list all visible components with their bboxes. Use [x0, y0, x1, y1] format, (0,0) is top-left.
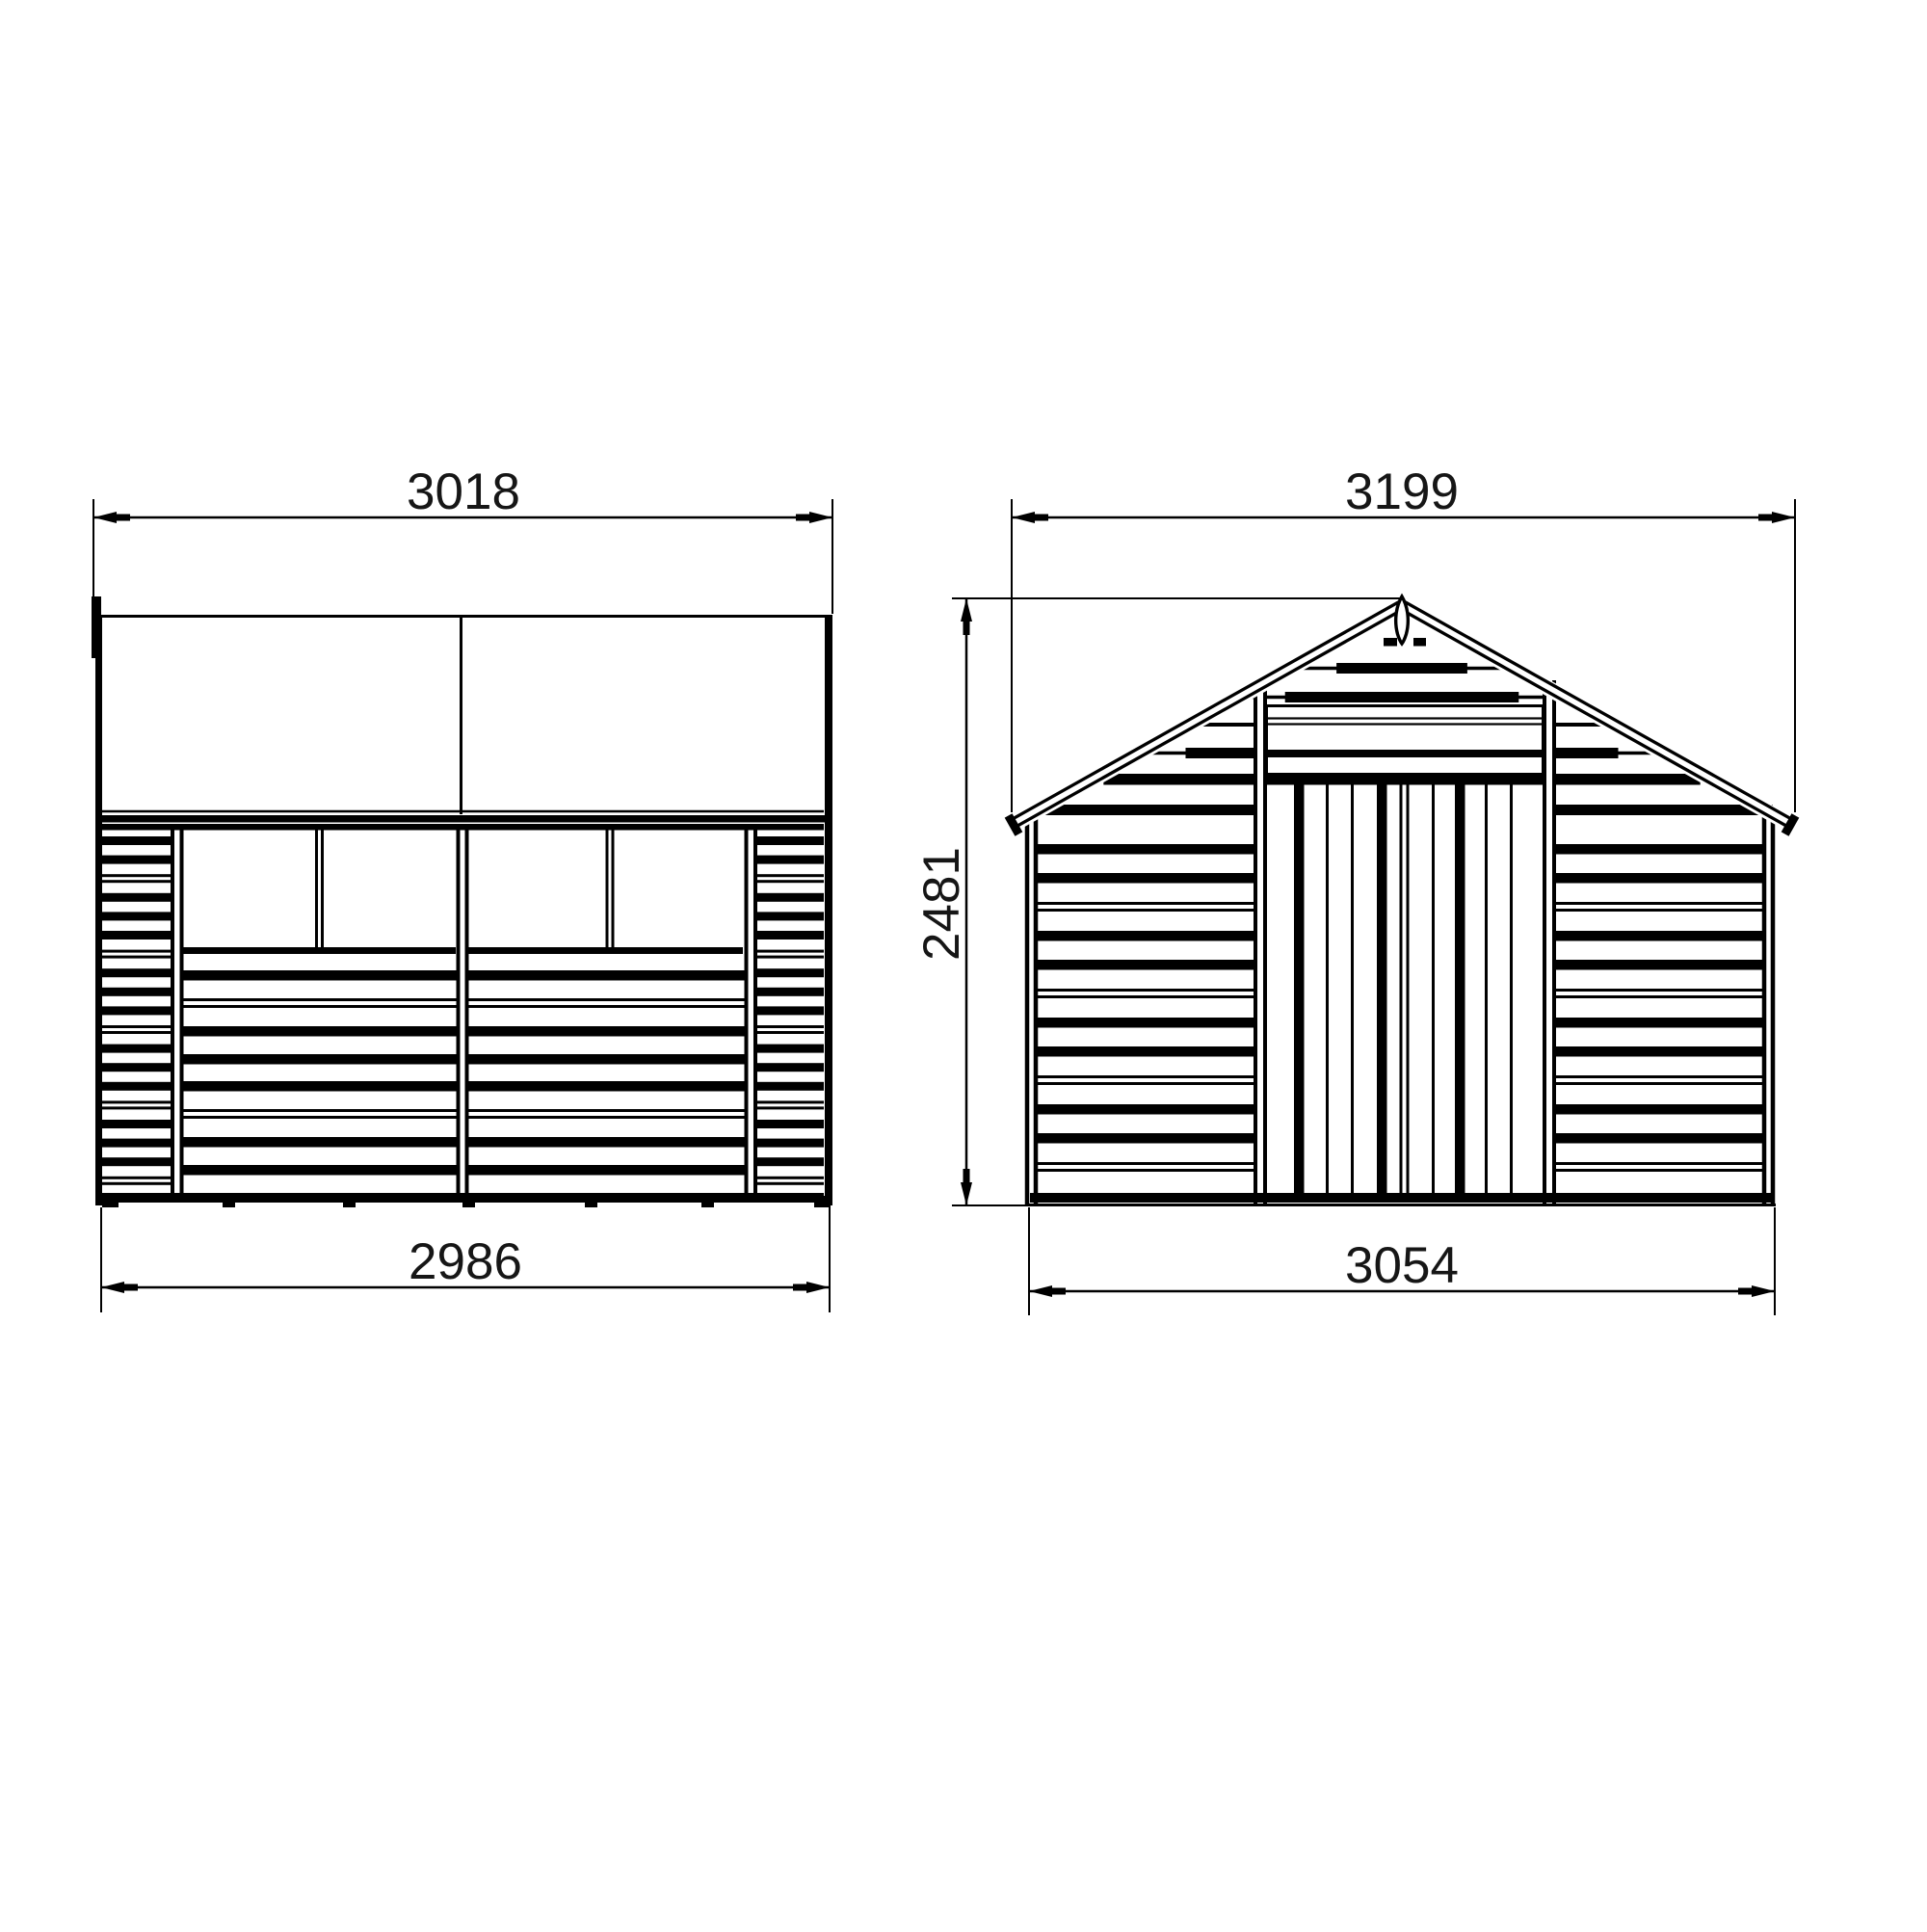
- svg-text:2986: 2986: [409, 1233, 522, 1290]
- svg-text:3018: 3018: [407, 463, 520, 520]
- svg-text:2481: 2481: [913, 847, 970, 961]
- svg-text:3054: 3054: [1345, 1237, 1459, 1294]
- svg-text:3199: 3199: [1345, 463, 1459, 520]
